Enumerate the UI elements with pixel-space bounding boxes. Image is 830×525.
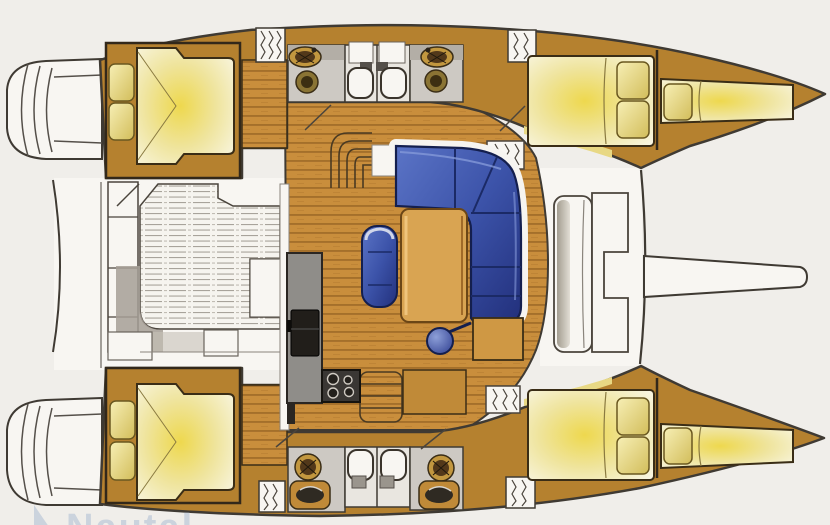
pillow xyxy=(110,401,135,439)
starboard-aft-head xyxy=(288,447,345,512)
port-aft-cabin xyxy=(106,43,240,178)
port-forward-cabin xyxy=(524,50,657,158)
port-forward-head xyxy=(410,45,463,102)
port-aft-head xyxy=(288,45,345,102)
end-table xyxy=(473,318,523,360)
wardrobe-hatch xyxy=(506,477,535,508)
starboard-forward-cabin xyxy=(524,377,657,480)
nav-counter xyxy=(403,370,466,414)
fridge-handle xyxy=(287,320,291,332)
pillow xyxy=(617,398,649,435)
wardrobe-hatch xyxy=(259,481,285,512)
pillow xyxy=(617,437,649,474)
pillow xyxy=(109,103,134,140)
stove xyxy=(322,370,360,402)
pillow xyxy=(109,64,134,101)
starboard-aft-cabin xyxy=(106,368,240,503)
pillow xyxy=(617,62,649,99)
fridge xyxy=(291,310,319,356)
hull-corridor xyxy=(242,60,287,148)
floor-plan-page: Nautal xyxy=(0,0,830,525)
shower-tray xyxy=(348,68,373,98)
pillow xyxy=(617,101,649,138)
cockpit-step xyxy=(108,332,152,360)
starboard-shower-stalls xyxy=(345,447,410,507)
pillow xyxy=(110,442,135,480)
watermark-text: Nautal xyxy=(66,507,194,525)
companionway-hatch xyxy=(486,386,520,413)
wardrobe-hatch xyxy=(256,28,285,62)
shower-tray xyxy=(381,68,406,98)
port-shower-stalls xyxy=(345,42,410,102)
hull-stairs xyxy=(360,372,402,422)
dining-table xyxy=(401,209,467,322)
pillow xyxy=(664,84,692,120)
starboard-forward-head xyxy=(410,447,463,510)
swivel-stool xyxy=(427,328,453,354)
starboard-forepeak-berth xyxy=(661,424,793,468)
sliding-door xyxy=(250,259,280,317)
catamaran-floor-plan: Nautal xyxy=(0,0,830,525)
double-berth xyxy=(137,384,234,500)
pillow xyxy=(664,428,692,464)
double-berth xyxy=(137,48,234,164)
port-forepeak-berth xyxy=(661,79,793,123)
